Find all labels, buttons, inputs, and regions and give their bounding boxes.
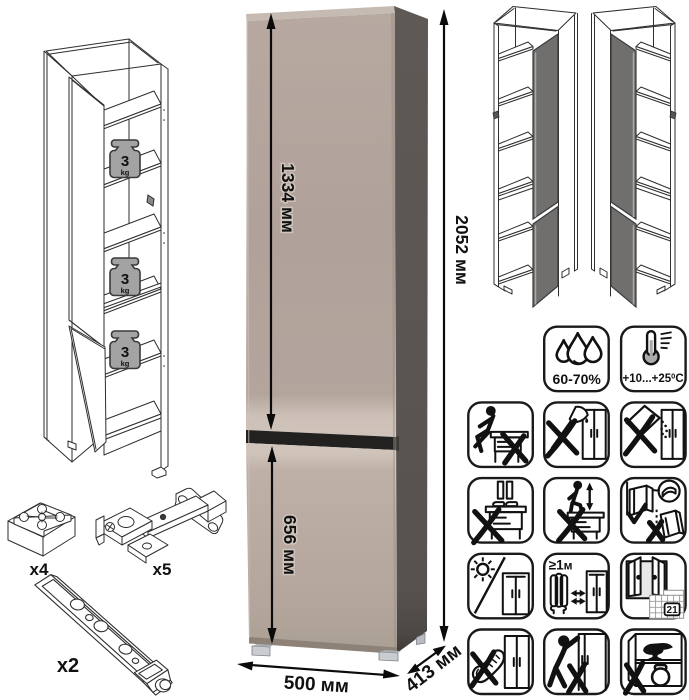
svg-text:500 мм: 500 мм xyxy=(283,673,349,698)
svg-text:2052 мм: 2052 мм xyxy=(452,215,472,285)
svg-text:kg: kg xyxy=(121,359,130,368)
svg-text:656 мм: 656 мм xyxy=(280,515,300,575)
svg-text:x2: x2 xyxy=(57,655,79,677)
svg-text:21: 21 xyxy=(667,605,679,616)
svg-text:≥1м: ≥1м xyxy=(549,557,573,572)
svg-text:+10...+250C: +10...+250C xyxy=(623,372,684,386)
svg-text:x4: x4 xyxy=(30,560,49,579)
svg-text:kg: kg xyxy=(121,168,130,177)
svg-text:60-70%: 60-70% xyxy=(553,371,602,387)
svg-text:kg: kg xyxy=(121,286,130,295)
svg-text:1334 мм: 1334 мм xyxy=(278,163,298,233)
svg-text:x5: x5 xyxy=(153,560,172,579)
